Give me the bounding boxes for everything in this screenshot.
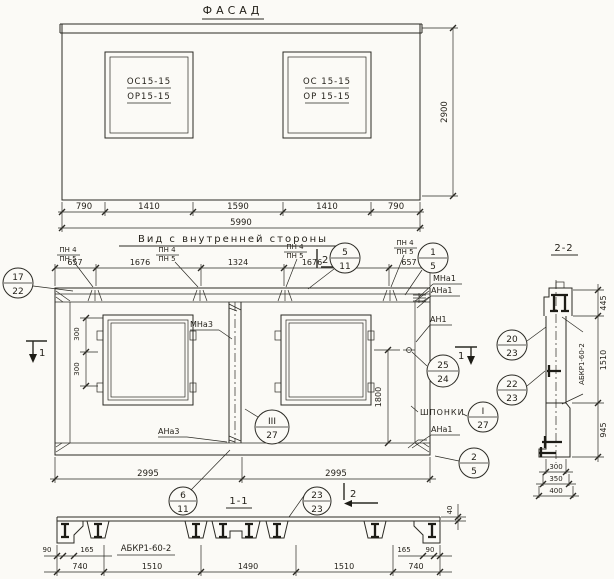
bottom-anchor	[539, 436, 562, 457]
dim-label: 300	[549, 463, 562, 471]
dim-label: 1676	[130, 258, 150, 267]
dim-label: 1676	[302, 258, 322, 267]
callout-bottom: 23	[311, 505, 322, 515]
panel-type-label: АБКР1-60-2	[121, 544, 172, 554]
hinge-tab	[275, 331, 281, 340]
dim-label: 300	[73, 362, 81, 375]
section-arrow	[467, 356, 475, 365]
section-1-1-dimensions: 90 165 165 90 740 1510 1490 1510 740 40	[43, 504, 466, 576]
dim-label: 790	[388, 202, 404, 212]
section-mark-label: 2	[322, 255, 328, 266]
dim-label: 1490	[238, 562, 258, 571]
dim-label: 2995	[325, 469, 347, 479]
callout-5-11: 5 11	[330, 243, 360, 273]
callout-top: 5	[342, 248, 348, 258]
dim-label: 1800	[374, 387, 383, 407]
inner-bottom-dimensions: 2995 2995	[50, 457, 436, 483]
dim-label: 1410	[138, 202, 160, 212]
window-mark-top: ОС 15-15	[303, 77, 351, 87]
dim-label: 945	[599, 422, 608, 437]
callout-bottom: 11	[177, 505, 188, 515]
callout-20-23: 20 23	[497, 330, 527, 360]
callout-bottom: 27	[266, 431, 277, 441]
dim-label: 657	[401, 258, 416, 267]
dim-label: 350	[549, 475, 562, 483]
label-mna1: МНа1	[433, 274, 456, 283]
callout-bottom: 5	[471, 467, 477, 477]
callout-leaders	[33, 269, 546, 517]
section-arrow	[29, 354, 37, 363]
facade-window-right: ОС 15-15 ОР 15-15	[283, 52, 371, 138]
label-ana1-bottom: АНа1	[431, 425, 452, 434]
dim-label: 300	[73, 327, 81, 340]
top-connector-anchor	[550, 295, 569, 311]
section-mark-label: 1	[39, 348, 45, 359]
dim-label: 400	[549, 487, 562, 495]
pn-label-bottom: ПН 5	[158, 255, 175, 263]
callout-top: 1	[430, 248, 436, 258]
label-leader	[158, 437, 227, 442]
window-frame-outer	[281, 315, 371, 405]
inner-window-right	[275, 315, 374, 405]
dim-line	[55, 264, 430, 286]
rib-trapezoids	[87, 521, 386, 538]
drawing-canvas: ФАСАД ОС15-15 ОР15-15 ОС 15-15 ОР 15-15 …	[0, 0, 614, 579]
callout-bottom: 24	[437, 375, 449, 385]
mid-anchor	[547, 365, 561, 377]
dim-label-total: 5990	[230, 218, 252, 228]
pn-label-bottom: ПН 5	[286, 252, 303, 260]
label-an1: АН1	[430, 315, 447, 324]
dim-label: 1510	[599, 350, 608, 370]
callout-bottom: 11	[339, 262, 350, 272]
dim-label: 1410	[316, 202, 338, 212]
callout-III-27: III 27	[255, 410, 289, 444]
section-1-1: 1-1 АБКР1-60-2 90 165 165 90 740 1510 14…	[43, 496, 466, 576]
facade-window-left: ОС15-15 ОР15-15	[105, 52, 193, 138]
window-frame-mid	[286, 320, 366, 400]
reinforcement-labels: МНа3 АНа3 МНа1 АНа1 АН1 ШПОНКИ АНа1	[158, 274, 467, 448]
pn-label-top: ПН 4	[158, 246, 176, 254]
rib-marks	[88, 290, 397, 301]
panel-type-label: АБКР1-60-2	[578, 343, 586, 385]
callout-bottom: 22	[12, 287, 23, 297]
dim-label: 90	[426, 546, 435, 554]
window-mark-bottom: ОР15-15	[127, 92, 171, 102]
callout-22-23: 22 23	[497, 375, 527, 405]
dim-label-40: 40	[446, 506, 454, 515]
callout-top: 17	[12, 273, 23, 283]
hinge-tab	[97, 331, 103, 340]
window-mark-bottom: ОР 15-15	[303, 92, 350, 102]
dim-label: 740	[408, 562, 423, 571]
callout-1-5: 1 5	[418, 243, 448, 273]
dim-label: 2995	[137, 469, 159, 479]
section-mark-1-right: 1	[455, 347, 477, 365]
label-ana3: АНа3	[158, 427, 179, 436]
hinge-tab	[97, 383, 103, 392]
dim-label: 165	[80, 546, 93, 554]
dim-label: 1510	[334, 562, 354, 571]
ibeam-anchor-marks	[61, 524, 436, 537]
pn-label-bottom: ПН 5	[396, 248, 413, 256]
callout-2-5: 2 5	[459, 448, 489, 478]
callout-bottom: 27	[477, 421, 488, 431]
pn-label-top: ПН 4	[396, 239, 414, 247]
lifting-hook-detail	[556, 282, 564, 288]
hinge-tab	[275, 383, 281, 392]
callout-top: I	[482, 407, 485, 417]
facade-dimensions: 790 1410 1590 1410 790 5990 2900	[58, 25, 458, 232]
slab-flange	[57, 517, 440, 521]
section-arrow	[344, 500, 352, 507]
callout-top: 20	[506, 335, 518, 345]
callout-top: 25	[437, 361, 448, 371]
callout-top: 6	[180, 491, 186, 501]
drawing-sheet: ФАСАД ОС15-15 ОР15-15 ОС 15-15 ОР 15-15 …	[0, 0, 614, 579]
callout-I-27: I 27	[468, 402, 498, 432]
dim-label: 445	[599, 295, 608, 310]
section-mark-label: 2	[350, 489, 356, 500]
window-frame-mid	[108, 320, 188, 400]
inner-window-left	[97, 315, 196, 405]
dim-label: 1590	[227, 202, 249, 212]
label-shponki: ШПОНКИ	[420, 408, 465, 417]
section-mark-1-left: 1	[26, 341, 47, 363]
callout-top: 2	[471, 453, 477, 463]
dim-label: 1324	[228, 258, 248, 267]
label-mna3: МНа3	[190, 320, 213, 329]
window-frame-outer	[103, 315, 193, 405]
inner-1800-dim: 1800	[374, 347, 400, 446]
section-mark-label: 1	[458, 351, 464, 362]
callout-6-11: 6 11	[169, 487, 197, 515]
dim-label: 90	[43, 546, 52, 554]
facade-view: ФАСАД ОС15-15 ОР15-15 ОС 15-15 ОР 15-15 …	[58, 4, 458, 232]
callout-bottom: 5	[430, 262, 436, 272]
callout-17-22: 17 22	[3, 268, 33, 298]
inner-300-dims: 300 300	[73, 315, 103, 389]
dim-line	[50, 457, 436, 483]
callout-bottom: 23	[506, 349, 517, 359]
window-frame-inner	[111, 323, 185, 397]
window-frame-inner	[289, 323, 363, 397]
label-leader	[416, 325, 452, 342]
section-2-2: 2-2 АБКР1-60-2 445 1510 945 300 350 400	[533, 243, 608, 499]
dim-label-height: 2900	[440, 101, 450, 123]
section-2-2-title: 2-2	[554, 243, 573, 254]
section-2-2-dimensions: 445 1510 945 300 350 400	[533, 284, 608, 499]
inner-top-dimensions: 657 1676 1324 1676 657	[52, 258, 433, 286]
dim-label: 740	[72, 562, 87, 571]
dim-label: 1510	[142, 562, 162, 571]
callout-25-24: 25 24	[427, 355, 459, 387]
facade-title: ФАСАД	[203, 4, 264, 17]
section-1-1-title: 1-1	[229, 496, 248, 507]
callout-top: 22	[506, 380, 517, 390]
dim-line	[80, 318, 103, 386]
window-mark-top: ОС15-15	[127, 77, 171, 87]
dim-label: 165	[397, 546, 410, 554]
section-mark-2-bottom: 2	[344, 483, 378, 507]
callout-23-23: 23 23	[303, 487, 331, 515]
callout-bottom: 23	[506, 394, 517, 404]
label-ana1-top: АНа1	[431, 286, 452, 295]
inner-view: Вид с внутренней стороны 657 1676 1324 1…	[26, 234, 477, 507]
bottom-block-outline	[539, 403, 570, 457]
callout-top: III	[268, 417, 276, 427]
callout-top: 23	[311, 491, 322, 501]
pn-label-top: ПН 4	[59, 246, 77, 254]
pn-label-bottom: ПН 5	[59, 255, 76, 263]
dim-label: 790	[76, 202, 92, 212]
facade-top-strip	[60, 24, 422, 33]
pn-label-top: ПН 4	[286, 243, 304, 251]
dim-ticks-small	[54, 553, 443, 559]
